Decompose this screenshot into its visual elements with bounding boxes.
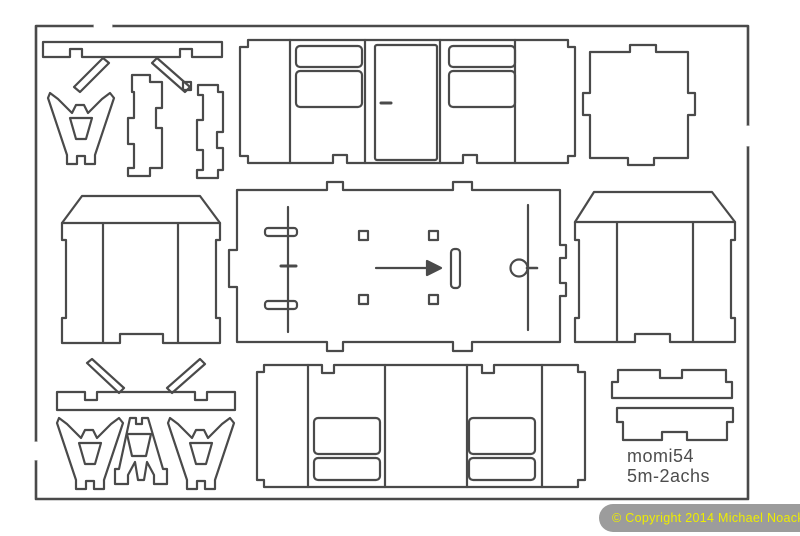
bolt-hole [359,295,368,304]
diagonal-brace-3 [87,359,124,393]
axle-guard-bottom-left [57,418,123,489]
window-opening [296,71,362,107]
lower-edge-strip [57,392,235,410]
bolt-hole [429,295,438,304]
parts-drawing: momi54 5m-2achs [0,0,800,536]
diagonal-brace-1 [74,58,109,92]
diagonal-brace-4 [167,359,205,393]
top-edge-strip [43,42,222,57]
side-wall-lower [257,365,585,487]
model-kit-parts-sheet: momi54 5m-2achs © Copyright 2014 Michael… [0,0,800,536]
end-wall-left-roof [62,196,220,223]
floor-plate-outline [229,182,566,351]
step-bracket-2 [197,85,223,178]
kit-label-line2: 5m-2achs [627,466,710,486]
window-opening [449,71,515,107]
direction-arrow-head [427,261,441,275]
slot-opening-vertical [451,249,460,288]
axle-guard-bottom-right [168,418,234,489]
end-wall-right-body [575,222,735,342]
border-cut-gaps [36,26,748,458]
kit-label-line1: momi54 [627,446,694,466]
window-opening [314,458,380,480]
bolt-hole [359,231,368,240]
sheet-lines: momi54 5m-2achs [36,26,748,499]
window-opening [296,46,362,67]
end-wall-left [62,196,220,343]
axle-guard-top-left [48,93,114,164]
cross-member-upper [612,370,732,398]
copyright-text: © Copyright 2014 Michael Noack [612,511,800,525]
cross-member-lower [617,408,733,440]
window-opening [469,418,535,454]
floor-plate [229,182,566,351]
diagonal-brace-2 [152,58,190,92]
slot-opening [265,301,297,309]
copyright-badge: © Copyright 2014 Michael Noack [599,504,800,532]
end-wall-right-roof [575,192,735,222]
pivot-circle [511,260,528,277]
window-opening [449,46,515,67]
bolt-hole [429,231,438,240]
end-wall-left-body [62,223,220,343]
window-opening [314,418,380,454]
end-wall-right [575,192,735,342]
window-opening [469,458,535,480]
step-bracket-1 [128,75,162,176]
sheet-border [36,26,748,499]
axle-guard-bottom-center [115,418,167,484]
side-wall-upper [240,40,575,163]
slot-opening [265,228,297,236]
corner-bracket-plate [583,45,695,165]
